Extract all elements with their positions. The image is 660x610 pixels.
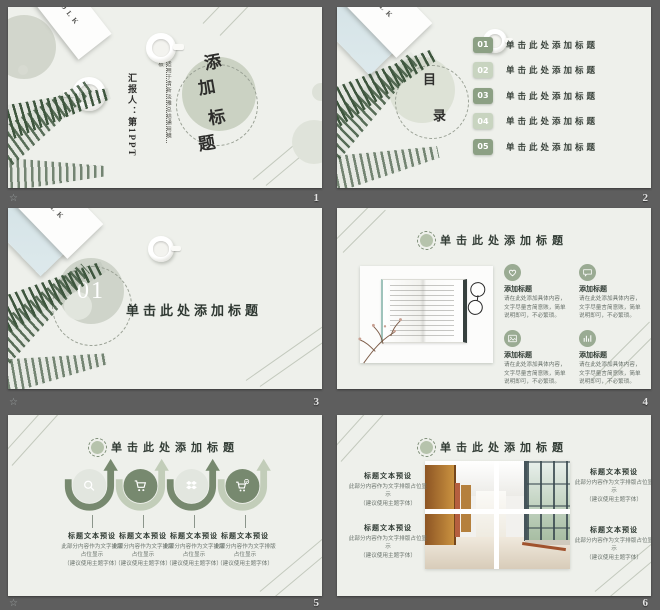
arrow-unit bbox=[64, 457, 120, 515]
diagonal-line bbox=[274, 526, 322, 596]
cell-slide-1: FOLK 添 加 标 题 适用于清新淡雅总结通用模板 汇报人：第1PPT bbox=[8, 7, 322, 208]
cover-title-char: 添 bbox=[202, 47, 223, 75]
sketch-circle-icon bbox=[418, 232, 434, 248]
feature-item: 添加标题 请在此处添加具体内容，文字尽量言简意赅，简单说明即可，不必繁琐。 bbox=[579, 330, 643, 387]
sketch-circle-icon bbox=[89, 439, 105, 455]
folk-label: FOLK bbox=[366, 7, 397, 22]
chart-icon bbox=[579, 330, 596, 347]
heart-icon bbox=[504, 264, 521, 281]
slide-1-cover[interactable]: FOLK 添 加 标 题 适用于清新淡雅总结通用模板 汇报人：第1PPT bbox=[8, 7, 322, 188]
photo-icon bbox=[504, 330, 521, 347]
folk-label: FOLK bbox=[54, 7, 82, 29]
preview-board: FOLK 添 加 标 题 适用于清新淡雅总结通用模板 汇报人：第1PPT bbox=[0, 0, 660, 610]
toc-item-label: 单击此处添加标题 bbox=[506, 90, 598, 102]
feature-grid: 添加标题 请在此处添加具体内容，文字尽量言简意赅，简单说明即可，不必繁琐。 添加… bbox=[504, 264, 644, 387]
edge-circle bbox=[292, 120, 322, 164]
footer-row-1-right: 2 bbox=[337, 188, 651, 208]
toc-item-label: 单击此处添加标题 bbox=[506, 64, 598, 76]
gallery-note: （建议使用主题字体） bbox=[347, 552, 429, 560]
toc-item-label: 单击此处添加标题 bbox=[506, 39, 598, 51]
gallery-heading: 标题文本预设 bbox=[347, 523, 429, 533]
fern-leaves bbox=[337, 76, 483, 188]
toc-number-badge: 01 bbox=[473, 37, 493, 53]
toc-item[interactable]: 04 单击此处添加标题 bbox=[473, 109, 598, 135]
footer-row-2-right: 4 bbox=[337, 389, 651, 415]
sketch-circle-icon bbox=[418, 439, 434, 455]
photo-grid-gap bbox=[494, 461, 499, 569]
slide-3-section[interactable]: FOLK 01 单击此处添加标题 bbox=[8, 208, 322, 389]
connector-line bbox=[143, 515, 144, 528]
feature-item: 添加标题 请在此处添加具体内容，文字尽量言简意赅，简单说明即可，不必繁琐。 bbox=[504, 264, 568, 321]
cover-presenter: 汇报人：第1PPT bbox=[126, 73, 139, 173]
gallery-heading: 标题文本预设 bbox=[347, 471, 429, 481]
row-1: FOLK 添 加 标 题 适用于清新淡雅总结通用模板 汇报人：第1PPT bbox=[8, 7, 660, 208]
feature-body: 请在此处添加具体内容，文字尽量言简意赅，简单说明即可，不必繁琐。 bbox=[579, 295, 643, 321]
corner-circle bbox=[8, 15, 56, 79]
slide-6-gallery[interactable]: 单击此处添加标题 标题文本预设 此部分内容作为文字排版占位显示 （建议使用主题字… bbox=[337, 415, 651, 596]
teacup bbox=[148, 236, 174, 262]
dot-circle bbox=[18, 65, 28, 75]
dried-branch bbox=[356, 307, 414, 365]
gallery-item: 标题文本预设 此部分内容作为文字排版占位显示 （建议使用主题字体） bbox=[573, 525, 651, 562]
slide-title-text: 单击此处添加标题 bbox=[111, 439, 239, 455]
gallery-heading: 标题文本预设 bbox=[573, 525, 651, 535]
process-body: 此部分内容作为文字排版占位显示 bbox=[213, 543, 277, 560]
fern-leaves bbox=[8, 282, 144, 389]
arrow-unit bbox=[217, 457, 273, 515]
watermark: ☆ bbox=[9, 598, 18, 609]
slide-2-toc[interactable]: FOLK 目 录 01 单击此处添加标题 02 单击此处添加标题 bbox=[337, 7, 651, 188]
feature-body: 请在此处添加具体内容，文字尽量言简意赅，简单说明即可，不必繁琐。 bbox=[504, 361, 568, 387]
gallery-note: （建议使用主题字体） bbox=[573, 554, 651, 562]
edge-circle bbox=[312, 83, 322, 101]
watermark: ☆ bbox=[9, 193, 18, 204]
slide-title: 单击此处添加标题 bbox=[337, 439, 651, 455]
feature-heading: 添加标题 bbox=[504, 284, 568, 294]
arrow-unit bbox=[115, 457, 171, 515]
toc-item[interactable]: 02 单击此处添加标题 bbox=[473, 58, 598, 84]
gallery-item: 标题文本预设 此部分内容作为文字排版占位显示 （建议使用主题字体） bbox=[347, 471, 429, 508]
page-number: 1 bbox=[314, 192, 320, 204]
footer-row-1-left: ☆ 1 bbox=[8, 188, 322, 208]
slide-title: 单击此处添加标题 bbox=[8, 439, 322, 455]
watermark: ☆ bbox=[9, 397, 18, 408]
footer-row-2-left: ☆ 3 bbox=[8, 389, 322, 415]
feature-body: 请在此处添加具体内容，文字尽量言简意赅，简单说明即可，不必繁琐。 bbox=[504, 295, 568, 321]
folk-label: FOLK bbox=[37, 208, 68, 223]
cell-slide-4: 单击此处添加标题 bbox=[337, 208, 651, 415]
gallery-item: 标题文本预设 此部分内容作为文字排版占位显示 （建议使用主题字体） bbox=[347, 523, 429, 560]
fern-leaves bbox=[8, 84, 126, 188]
toc-item[interactable]: 01 单击此处添加标题 bbox=[473, 32, 598, 58]
corridor-photo bbox=[425, 461, 570, 569]
process-heading: 标题文本预设 bbox=[213, 531, 277, 541]
connector-line bbox=[245, 515, 246, 528]
chat-icon bbox=[579, 264, 596, 281]
process-item: 标题文本预设 此部分内容作为文字排版占位显示 （建议使用主题字体） bbox=[213, 515, 277, 568]
connector-line bbox=[194, 515, 195, 528]
photo-grid-gap bbox=[425, 509, 570, 514]
feature-item: 添加标题 请在此处添加具体内容，文字尽量言简意赅，简单说明即可，不必繁琐。 bbox=[579, 264, 643, 321]
cell-slide-2: FOLK 目 录 01 单击此处添加标题 02 单击此处添加标题 bbox=[337, 7, 651, 208]
toc-item[interactable]: 05 单击此处添加标题 bbox=[473, 134, 598, 160]
slide-4-content[interactable]: 单击此处添加标题 bbox=[337, 208, 651, 389]
diagonal-line bbox=[220, 7, 304, 36]
cell-slide-3: FOLK 01 单击此处添加标题 ☆ 3 bbox=[8, 208, 322, 415]
page-number: 6 bbox=[643, 597, 649, 609]
teacup bbox=[146, 33, 176, 63]
slide-title-text: 单击此处添加标题 bbox=[440, 232, 568, 248]
feature-body: 请在此处添加具体内容，文字尽量言简意赅，简单说明即可，不必繁琐。 bbox=[579, 361, 643, 387]
gallery-body: 此部分内容作为文字排版占位显示 bbox=[347, 483, 429, 500]
cell-slide-5: 单击此处添加标题 bbox=[8, 415, 322, 610]
feature-heading: 添加标题 bbox=[504, 350, 568, 360]
cell-slide-6: 单击此处添加标题 标题文本预设 此部分内容作为文字排版占位显示 （建议使用主题字… bbox=[337, 415, 651, 610]
gallery-heading: 标题文本预设 bbox=[573, 467, 651, 477]
toc-item[interactable]: 03 单击此处添加标题 bbox=[473, 83, 598, 109]
row-3: 单击此处添加标题 bbox=[8, 415, 660, 610]
slide-5-process[interactable]: 单击此处添加标题 bbox=[8, 415, 322, 596]
toc-item-label: 单击此处添加标题 bbox=[506, 115, 598, 127]
row-2: FOLK 01 单击此处添加标题 ☆ 3 bbox=[8, 208, 660, 415]
gallery-note: （建议使用主题字体） bbox=[347, 500, 429, 508]
page-number: 3 bbox=[314, 396, 320, 408]
toc-item-label: 单击此处添加标题 bbox=[506, 141, 598, 153]
toc-list: 01 单击此处添加标题 02 单击此处添加标题 03 单击此处添加标题 04 单… bbox=[473, 32, 598, 160]
gallery-body: 此部分内容作为文字排版占位显示 bbox=[573, 479, 651, 496]
section-title: 单击此处添加标题 bbox=[126, 300, 262, 319]
feature-heading: 添加标题 bbox=[579, 350, 643, 360]
gallery-note: （建议使用主题字体） bbox=[573, 496, 651, 504]
page-number: 4 bbox=[643, 396, 649, 408]
page-number: 2 bbox=[643, 192, 649, 204]
footer-row-3-right: 6 bbox=[337, 596, 651, 610]
slide-title: 单击此处添加标题 bbox=[337, 232, 651, 248]
arrow-unit bbox=[166, 457, 222, 515]
gallery-item: 标题文本预设 此部分内容作为文字排版占位显示 （建议使用主题字体） bbox=[573, 467, 651, 504]
footer-row-3-left: ☆ 5 bbox=[8, 596, 322, 610]
slide-title-text: 单击此处添加标题 bbox=[440, 439, 568, 455]
gallery-body: 此部分内容作为文字排版占位显示 bbox=[347, 535, 429, 552]
process-note: （建议使用主题字体） bbox=[213, 560, 277, 568]
cover-tagline: 适用于清新淡雅总结通用模板 bbox=[156, 61, 172, 145]
page-number: 5 bbox=[314, 597, 320, 609]
book-photo bbox=[360, 266, 493, 363]
feature-heading: 添加标题 bbox=[579, 284, 643, 294]
gallery-body: 此部分内容作为文字排版占位显示 bbox=[573, 537, 651, 554]
connector-line bbox=[92, 515, 93, 528]
feature-item: 添加标题 请在此处添加具体内容，文字尽量言简意赅，简单说明即可，不必繁琐。 bbox=[504, 330, 568, 387]
